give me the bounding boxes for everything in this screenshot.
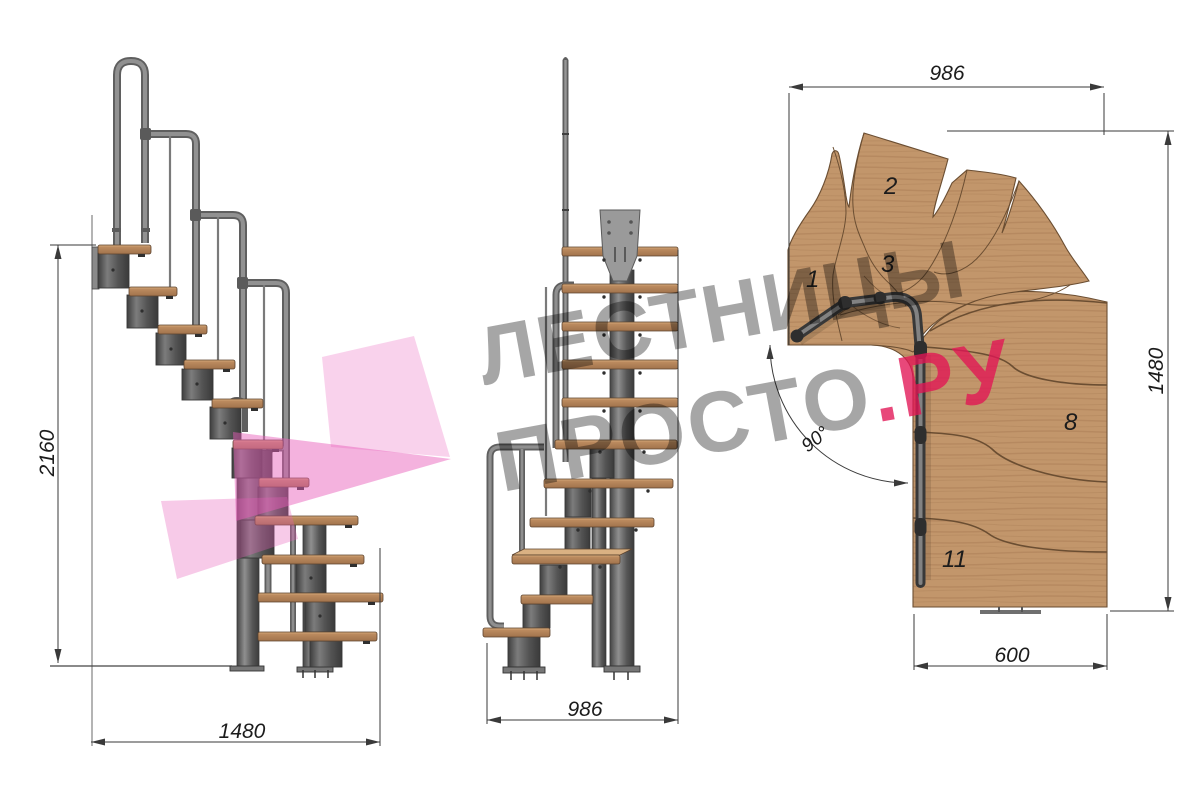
svg-text:2160: 2160 — [36, 429, 59, 477]
svg-text:2: 2 — [883, 173, 897, 200]
svg-text:1480: 1480 — [219, 720, 266, 743]
svg-text:11: 11 — [942, 546, 967, 573]
svg-text:1480: 1480 — [1145, 347, 1168, 394]
svg-text:8: 8 — [1064, 409, 1078, 436]
svg-text:986: 986 — [567, 698, 602, 721]
svg-text:986: 986 — [929, 62, 964, 85]
svg-text:600: 600 — [994, 644, 1029, 667]
